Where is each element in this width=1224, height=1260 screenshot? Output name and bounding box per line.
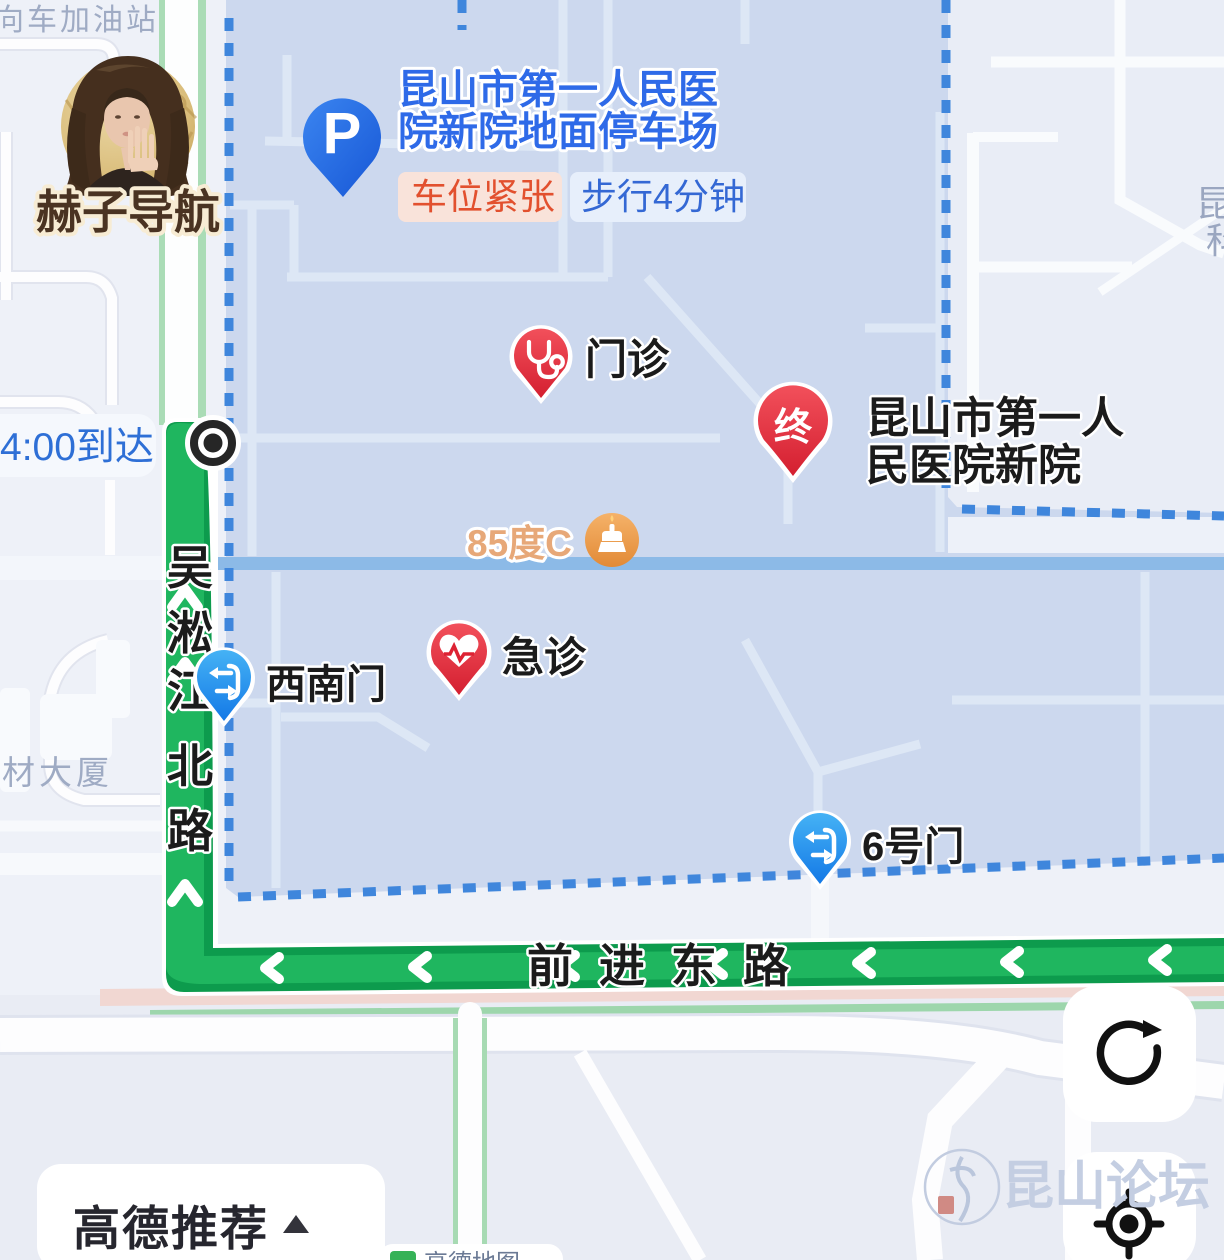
svg-text:西南门: 西南门 bbox=[266, 663, 386, 707]
svg-text:高德地图: 高德地图 bbox=[424, 1250, 520, 1260]
svg-text:昆山市第一人: 昆山市第一人 bbox=[866, 395, 1124, 443]
svg-text:急诊: 急诊 bbox=[502, 634, 587, 681]
svg-text:步行4分钟: 步行4分钟 bbox=[581, 176, 745, 217]
svg-text:6号门: 6号门 bbox=[862, 825, 964, 869]
svg-text:车位紧张: 车位紧张 bbox=[411, 176, 555, 217]
svg-text:昆山市第一人民医: 昆山市第一人民医 bbox=[398, 68, 718, 112]
svg-text:路: 路 bbox=[167, 805, 214, 857]
svg-text:昆: 昆 bbox=[1196, 183, 1224, 224]
svg-text:门诊: 门诊 bbox=[585, 336, 670, 383]
svg-text:科: 科 bbox=[1206, 220, 1224, 261]
svg-text:民医院新院: 民医院新院 bbox=[866, 442, 1081, 490]
svg-text:淞: 淞 bbox=[167, 607, 213, 659]
svg-text:P: P bbox=[323, 101, 362, 166]
svg-text:4:00到达: 4:00到达 bbox=[0, 426, 154, 469]
svg-text:85度C: 85度C bbox=[467, 523, 572, 564]
svg-text:院新院地面停车场: 院新院地面停车场 bbox=[398, 110, 718, 154]
svg-text:前进东路: 前进东路 bbox=[527, 940, 815, 992]
svg-text:北: 北 bbox=[167, 740, 213, 792]
svg-text:高德推荐: 高德推荐 bbox=[73, 1202, 269, 1255]
svg-text:昆山论坛: 昆山论坛 bbox=[1002, 1158, 1210, 1216]
svg-text:吴: 吴 bbox=[167, 542, 213, 594]
svg-text:向车加油站: 向车加油站 bbox=[0, 4, 159, 37]
svg-text:终: 终 bbox=[774, 407, 813, 449]
svg-text:赫子导航: 赫子导航 bbox=[36, 186, 220, 238]
svg-text:材大厦: 材大厦 bbox=[2, 754, 113, 791]
